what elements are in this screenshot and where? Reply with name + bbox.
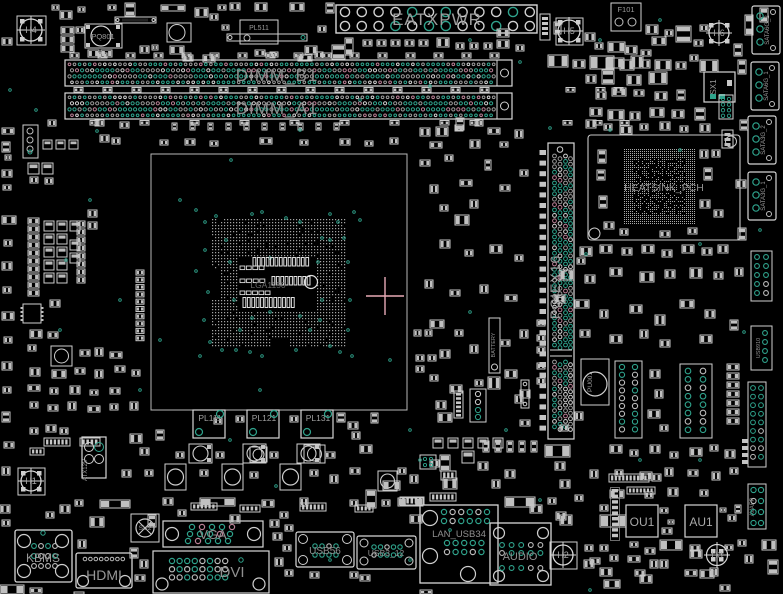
svg-text:BATTERY: BATTERY — [491, 332, 497, 357]
svg-text:H5: H5 — [563, 26, 575, 36]
svg-text:HDMI: HDMI — [86, 567, 122, 583]
svg-text:H6: H6 — [713, 28, 725, 38]
svg-text:PU001: PU001 — [587, 372, 594, 392]
svg-text:ATX12V: ATX12V — [83, 459, 89, 481]
svg-text:H3: H3 — [711, 550, 723, 560]
svg-text:KBMS: KBMS — [26, 551, 60, 565]
svg-text:HEATSINK_PCH: HEATSINK_PCH — [624, 182, 704, 194]
svg-text:PL511: PL511 — [249, 25, 269, 32]
svg-text:H2: H2 — [557, 550, 569, 560]
svg-text:DIMM_B1: DIMM_B1 — [236, 66, 319, 85]
svg-text:PL111: PL111 — [198, 413, 222, 423]
svg-text:SATA3G_1: SATA3G_1 — [761, 181, 767, 211]
svg-text:H1: H1 — [25, 476, 37, 486]
svg-text:DIMM_A1: DIMM_A1 — [236, 99, 319, 118]
svg-text:LAN_USB34: LAN_USB34 — [432, 529, 486, 540]
svg-text:SATA3G_2: SATA3G_2 — [761, 125, 767, 155]
svg-text:PCIEX16: PCIEX16 — [547, 255, 563, 320]
svg-text:AUDIO: AUDIO — [503, 551, 538, 563]
svg-text:SATA6G_1: SATA6G_1 — [764, 71, 770, 101]
svg-text:SATA6G_2: SATA6G_2 — [765, 15, 771, 45]
svg-text:PL121: PL121 — [252, 413, 277, 423]
svg-text:VGA: VGA — [199, 527, 227, 542]
svg-text:OU1: OU1 — [630, 515, 655, 529]
svg-text:USB56: USB56 — [309, 546, 341, 557]
svg-text:LGA1150: LGA1150 — [250, 280, 286, 290]
svg-text:H4: H4 — [25, 25, 37, 35]
svg-text:PQ801: PQ801 — [91, 32, 114, 41]
svg-text:PL131: PL131 — [306, 413, 331, 423]
svg-text:AU1: AU1 — [689, 515, 713, 529]
svg-text:SX1: SX1 — [709, 79, 718, 95]
svg-text:EATXPWR: EATXPWR — [392, 10, 482, 29]
svg-text:USB910: USB910 — [756, 338, 762, 359]
svg-text:F101: F101 — [617, 5, 634, 14]
svg-text:DVI: DVI — [219, 564, 244, 581]
svg-text:USB3_12: USB3_12 — [368, 548, 405, 558]
